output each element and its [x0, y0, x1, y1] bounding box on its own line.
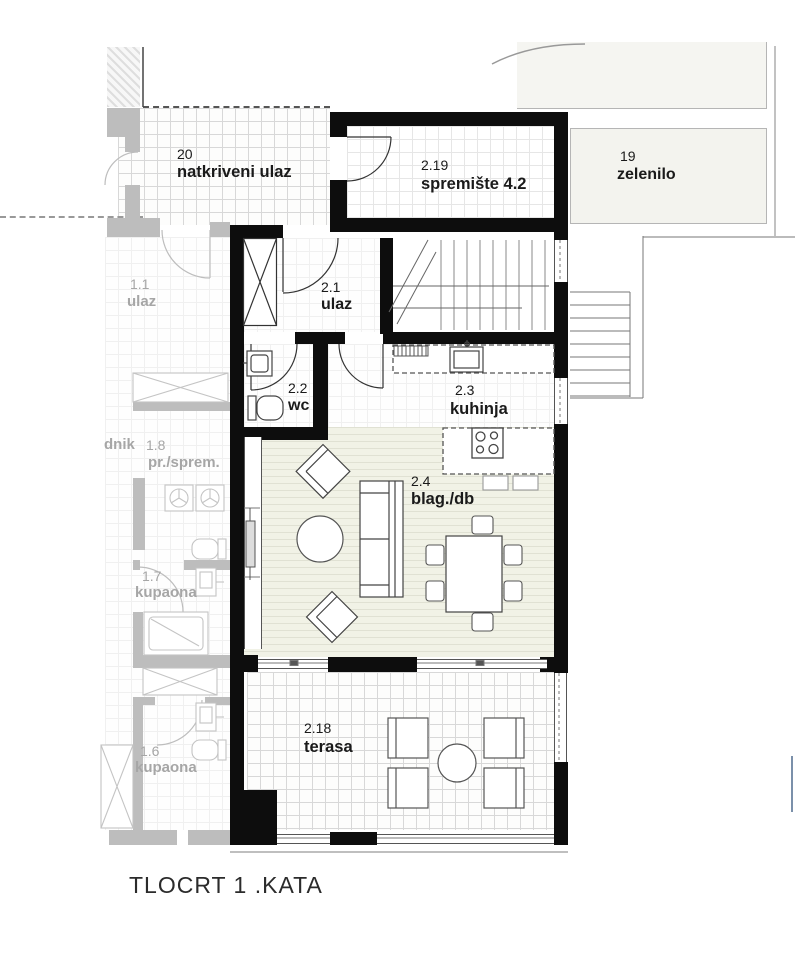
room-number-ulaz: 2.1 [321, 279, 340, 295]
room-number-wc: 2.2 [288, 380, 307, 396]
room-label-nb-hodnik: dnik [104, 436, 135, 453]
bath6-fixtures [192, 703, 226, 760]
room-label-nb-kupaona7: kupaona [135, 584, 197, 601]
room-label-nb-kupaona6: kupaona [135, 759, 197, 776]
room-number-zelenilo: 19 [620, 148, 636, 164]
plan-linework [0, 0, 798, 960]
exterior-stairs [570, 236, 795, 398]
armchair [307, 592, 358, 643]
coffee-table [297, 516, 343, 562]
wc-toilet [248, 396, 283, 420]
drawing-title: TLOCRT 1 .KATA [129, 872, 323, 899]
floor-plan: 20 natkriveni ulaz 2.19 spremište 4.2 19… [0, 0, 798, 960]
wardrobe [244, 239, 277, 326]
washing-machines [165, 485, 224, 511]
kitchen-sink [450, 340, 483, 372]
door-living [339, 344, 383, 388]
room-label-blag: blag./db [411, 490, 474, 509]
terrace-table [438, 744, 476, 782]
room-number-nb-sprem: 1.8 [146, 437, 165, 453]
room-label-nb-sprem: pr./sprem. [148, 454, 220, 471]
terrain-curve [492, 44, 585, 64]
room-label-zelenilo: zelenilo [617, 166, 676, 184]
door-neighbor-bath6 [157, 700, 202, 745]
room-number-spremiste: 2.19 [421, 157, 448, 173]
room-number-natkriveni: 20 [177, 146, 193, 162]
room-number-nb-kupaona6: 1.6 [140, 743, 159, 759]
room-number-nb-kupaona7: 1.7 [142, 568, 161, 584]
armchair [296, 445, 350, 499]
room-label-nb-ulaz: ulaz [127, 293, 156, 310]
room-label-ulaz: ulaz [321, 296, 352, 314]
wc-sink [243, 351, 272, 376]
room-number-kuhinja: 2.3 [455, 382, 474, 398]
sofa [360, 481, 403, 597]
stove [472, 428, 503, 458]
room-number-blag: 2.4 [411, 473, 430, 489]
room-number-nb-ulaz: 1.1 [130, 276, 149, 292]
room-label-spremiste: spremište 4.2 [421, 175, 526, 194]
room-label-kuhinja: kuhinja [450, 400, 508, 419]
room-label-natkriveni: natkriveni ulaz [177, 163, 292, 182]
room-label-terasa: terasa [304, 738, 353, 757]
bar-stools [483, 476, 538, 490]
window-handle [246, 508, 255, 580]
interior-stairs [389, 240, 549, 330]
door-storage [347, 137, 391, 181]
room-number-terasa: 2.18 [304, 720, 331, 736]
dining-table [446, 536, 502, 612]
room-label-wc: wc [288, 397, 309, 415]
